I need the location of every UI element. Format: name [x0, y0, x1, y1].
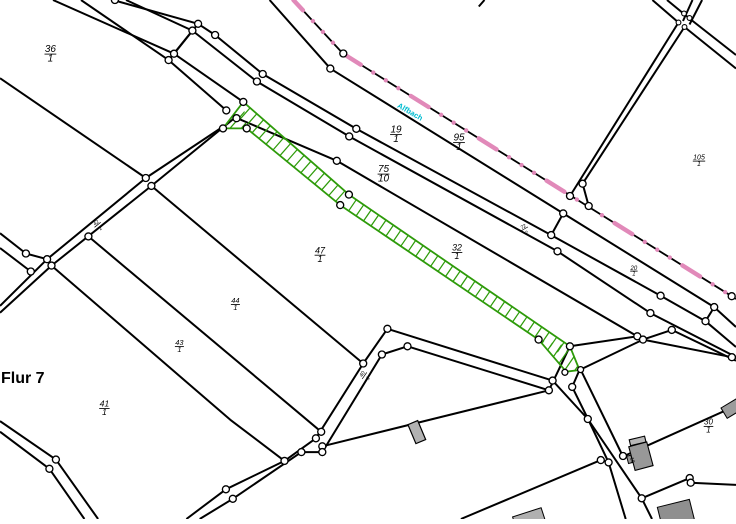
- svg-text:1: 1: [177, 345, 181, 354]
- svg-text:1: 1: [393, 134, 399, 145]
- svg-text:1: 1: [706, 425, 710, 434]
- svg-text:1: 1: [48, 54, 54, 65]
- svg-text:Flur 7: Flur 7: [1, 370, 45, 387]
- svg-text:1: 1: [317, 254, 322, 264]
- svg-text:1: 1: [632, 272, 635, 278]
- svg-text:1: 1: [697, 161, 701, 168]
- svg-text:1: 1: [233, 303, 237, 312]
- svg-text:1: 1: [455, 251, 460, 261]
- svg-text:10: 10: [378, 174, 390, 185]
- svg-text:1: 1: [456, 142, 462, 153]
- svg-text:1: 1: [102, 407, 107, 417]
